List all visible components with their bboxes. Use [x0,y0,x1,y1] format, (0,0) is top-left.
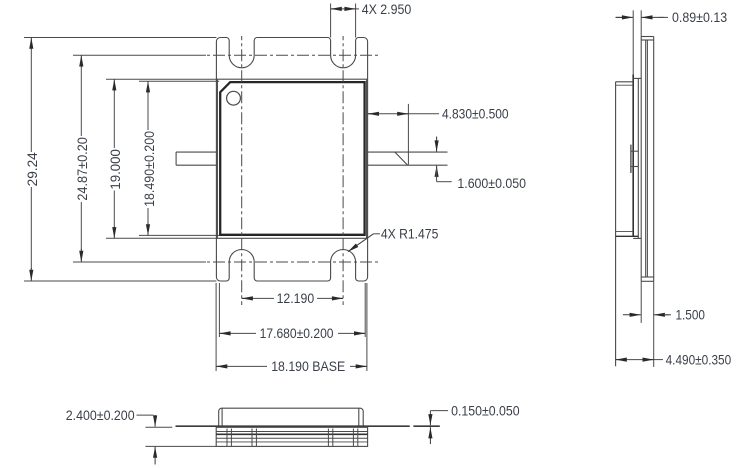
svg-text:17.680±0.200: 17.680±0.200 [260,326,334,341]
svg-text:29.24: 29.24 [25,152,40,187]
svg-text:12.190: 12.190 [277,291,315,306]
svg-text:4X R1.475: 4X R1.475 [381,227,439,242]
svg-text:0.150±0.050: 0.150±0.050 [451,403,520,418]
svg-text:0.89±0.13: 0.89±0.13 [672,10,727,25]
svg-text:1.600±0.050: 1.600±0.050 [457,176,526,191]
svg-text:18.490±0.200: 18.490±0.200 [142,131,157,207]
svg-text:24.87±0.20: 24.87±0.20 [75,137,90,201]
svg-text:2.400±0.200: 2.400±0.200 [66,408,135,423]
svg-text:18.190 BASE: 18.190 BASE [271,359,345,374]
svg-text:4.830±0.500: 4.830±0.500 [442,107,509,122]
svg-text:19.000: 19.000 [108,149,123,189]
svg-text:1.500: 1.500 [676,308,705,323]
svg-text:4.490±0.350: 4.490±0.350 [666,352,732,367]
svg-text:4X 2.950: 4X 2.950 [362,2,412,17]
